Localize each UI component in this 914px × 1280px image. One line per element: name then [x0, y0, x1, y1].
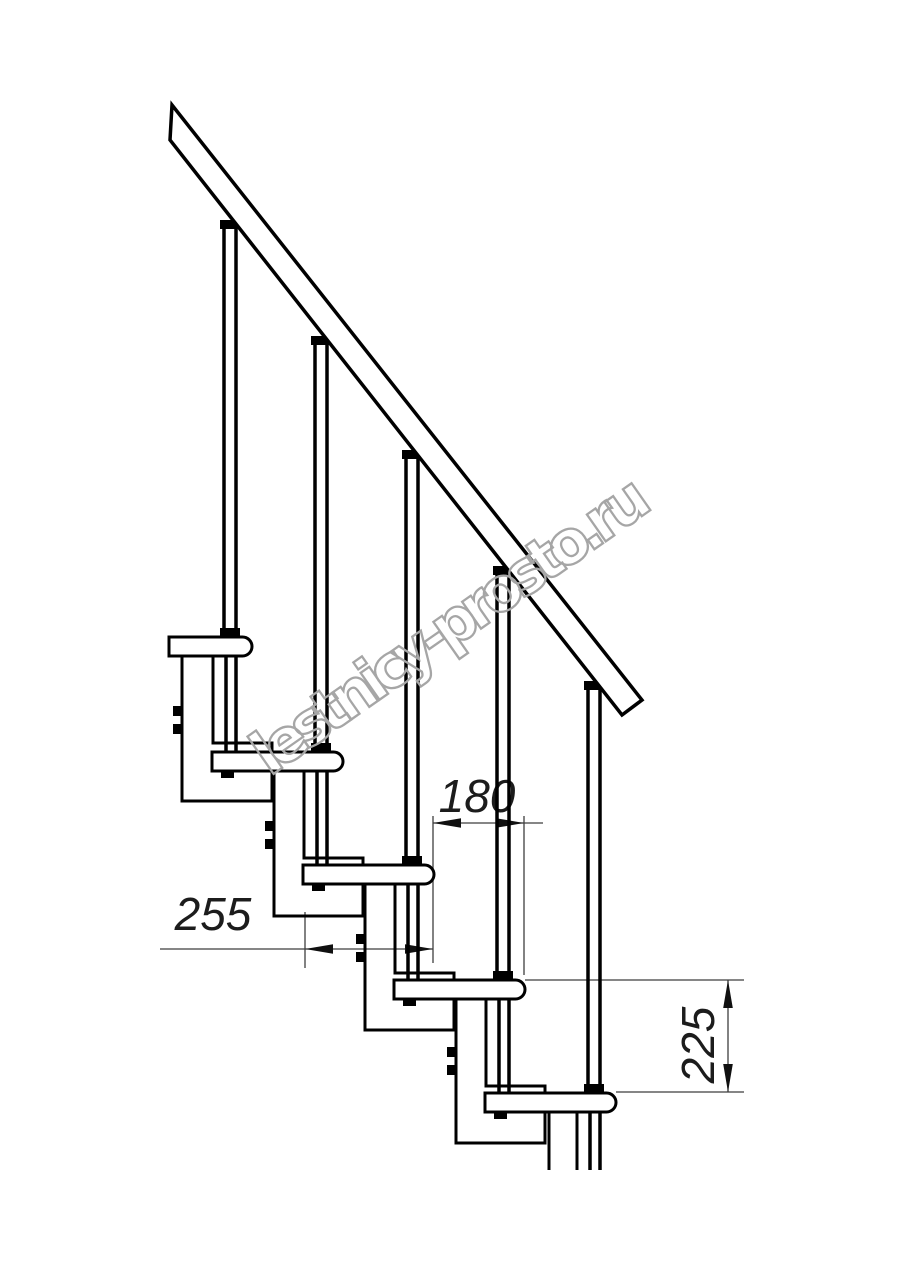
- baluster-1: [220, 220, 240, 637]
- dimension-step-run: 180: [433, 770, 543, 975]
- clamp-nub: [494, 1112, 507, 1119]
- baluster-5: [584, 681, 604, 1093]
- staircase-drawing: 180 255 225: [0, 0, 914, 1280]
- clamp-nub: [312, 884, 325, 891]
- tread-3: [303, 865, 434, 884]
- clamp-nub: [221, 771, 234, 778]
- tube-1: [226, 656, 236, 752]
- bolt: [173, 724, 182, 734]
- dimension-label-tread-depth: 255: [174, 888, 252, 940]
- arrowhead-left: [305, 944, 333, 954]
- bolt: [447, 1065, 456, 1075]
- dimension-tread-depth: 255: [160, 888, 433, 968]
- arrowhead-down: [723, 1064, 733, 1092]
- bolt: [265, 821, 274, 831]
- bolt: [265, 839, 274, 849]
- tube-4: [499, 999, 509, 1093]
- bolt: [356, 952, 365, 962]
- tube-2: [317, 771, 327, 865]
- dimension-label-step-run: 180: [439, 770, 516, 822]
- dimension-label-riser-height: 225: [672, 1006, 724, 1084]
- arrowhead-up: [723, 980, 733, 1008]
- tube-5: [590, 1112, 600, 1170]
- tread-4: [394, 980, 525, 999]
- staircase-drawing-canvas: 180 255 225: [0, 0, 914, 1280]
- clamp-nub: [403, 999, 416, 1006]
- bolt: [356, 934, 365, 944]
- bolt: [447, 1047, 456, 1057]
- tread-1: [169, 637, 252, 656]
- dimension-riser-height: 225: [525, 980, 744, 1092]
- tube-3: [408, 884, 418, 980]
- bolt: [173, 706, 182, 716]
- tread-5: [485, 1093, 616, 1112]
- support-module-5: [549, 1112, 577, 1170]
